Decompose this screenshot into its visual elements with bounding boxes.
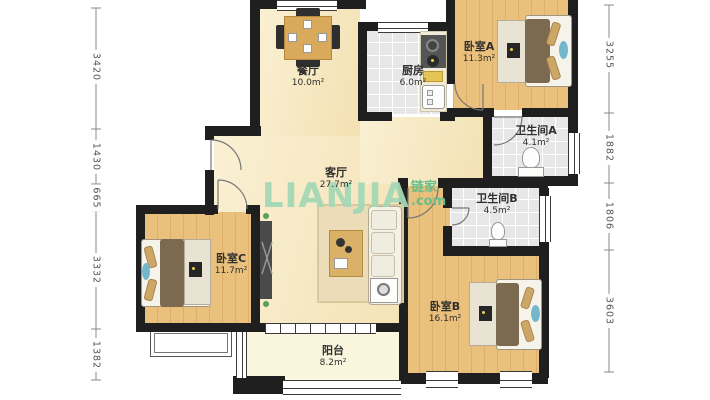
sliding-door	[265, 323, 376, 334]
window	[568, 133, 580, 174]
dim-right-1806: 1806	[604, 199, 615, 233]
dim-left-1430: 1430	[91, 140, 102, 174]
tv-stand	[260, 221, 272, 299]
bed-duvet	[160, 239, 184, 307]
room-name: 餐厅	[292, 64, 324, 78]
room-area: 10.0m²	[292, 78, 324, 90]
room-name: 厨房	[400, 64, 427, 78]
room-name: 卧室C	[215, 252, 247, 266]
window	[236, 332, 247, 378]
lianjia-watermark-cn: 链家 .com	[411, 181, 446, 210]
room-label-living: 客厅 27.7m²	[320, 166, 352, 192]
room-name: 卧室A	[463, 40, 495, 54]
round-pillow	[142, 263, 150, 280]
plate	[288, 33, 297, 42]
room-label-bedroom-a: 卧室A 11.3m²	[463, 40, 495, 66]
dim-right-3255: 3255	[604, 38, 615, 72]
plate	[318, 33, 327, 42]
window	[426, 371, 458, 388]
wall	[446, 0, 455, 84]
plate	[303, 20, 312, 29]
room-name: 客厅	[320, 166, 352, 180]
sofa-cushion	[371, 255, 395, 277]
dim-left-3420: 3420	[91, 50, 102, 84]
wall	[443, 246, 541, 256]
room-label-bedroom-c: 卧室C 11.7m²	[215, 252, 247, 278]
window	[500, 371, 532, 388]
bed-duvet	[496, 283, 519, 346]
room-label-bathroom-a: 卫生间A 4.1m²	[515, 124, 557, 150]
plant-icon	[263, 301, 269, 307]
room-label-dining: 餐厅 10.0m²	[292, 64, 324, 90]
dim-left-1382: 1382	[91, 338, 102, 372]
window	[539, 196, 551, 242]
room-area: 6.0m²	[400, 78, 427, 90]
round-pillow	[531, 305, 540, 322]
wall	[136, 323, 262, 332]
bed-duvet	[525, 19, 550, 83]
wall	[233, 376, 285, 394]
wall	[250, 0, 260, 131]
room-label-kitchen: 厨房 6.0m²	[400, 64, 427, 90]
room-area: 11.7m²	[215, 266, 247, 278]
teapot-icon	[336, 238, 345, 247]
tray	[334, 258, 348, 269]
plate	[303, 44, 312, 53]
hallway-floor	[360, 117, 492, 184]
wall	[539, 188, 549, 196]
room-area: 11.3m²	[463, 54, 495, 66]
burner-icon	[427, 55, 439, 67]
wall	[358, 112, 392, 121]
toilet-bowl	[491, 222, 505, 240]
room-area: 27.7m²	[320, 180, 352, 192]
wall	[374, 323, 408, 332]
round-pillow	[559, 41, 568, 59]
room-name: 卫生间A	[515, 124, 557, 138]
toilet-tank	[518, 167, 544, 177]
toilet-tank	[489, 239, 507, 247]
wall	[443, 226, 452, 248]
toilet-bowl	[522, 147, 540, 168]
tv-box	[507, 43, 520, 58]
wall	[251, 205, 260, 332]
tv-box	[479, 306, 492, 321]
room-label-balcony: 阳台 8.2m²	[320, 344, 347, 370]
floorplan-canvas: LIANJIA 链家 .com 餐厅 10.0m² 厨房 6.0m² 卧室A 1…	[0, 0, 710, 400]
room-area: 4.1m²	[515, 138, 557, 150]
room-label-bathroom-b: 卫生间B 4.5m²	[476, 192, 517, 218]
coffee-table	[329, 230, 363, 277]
sofa-cushion	[371, 232, 395, 254]
dim-left-665: 665	[91, 184, 102, 211]
wall	[483, 117, 492, 178]
wall	[446, 108, 494, 117]
room-name: 卫生间B	[476, 192, 517, 206]
wall	[438, 178, 548, 188]
wall	[136, 205, 218, 214]
room-label-bedroom-b: 卧室B 16.1m²	[429, 300, 461, 326]
tv-box	[189, 262, 202, 277]
room-area: 4.5m²	[476, 206, 517, 218]
dim-left-3332: 3332	[91, 253, 102, 287]
dim-right-1882: 1882	[604, 131, 615, 165]
plant-icon	[377, 283, 390, 296]
watermark-cn-text: 链家	[411, 181, 446, 195]
wall	[358, 22, 367, 121]
room-area: 8.2m²	[320, 358, 347, 370]
watermark-com-text: .com	[411, 195, 446, 209]
wall	[568, 174, 578, 186]
cup-icon	[345, 246, 352, 253]
sink-basin	[427, 90, 433, 96]
room-area: 16.1m²	[429, 314, 461, 326]
wall	[205, 126, 214, 140]
dim-right-3603: 3603	[604, 294, 615, 328]
sink-basin	[427, 99, 433, 105]
window	[283, 380, 401, 395]
bay-window	[150, 330, 232, 357]
room-name: 阳台	[320, 344, 347, 358]
burner-icon	[426, 39, 439, 52]
room-name: 卧室B	[429, 300, 461, 314]
